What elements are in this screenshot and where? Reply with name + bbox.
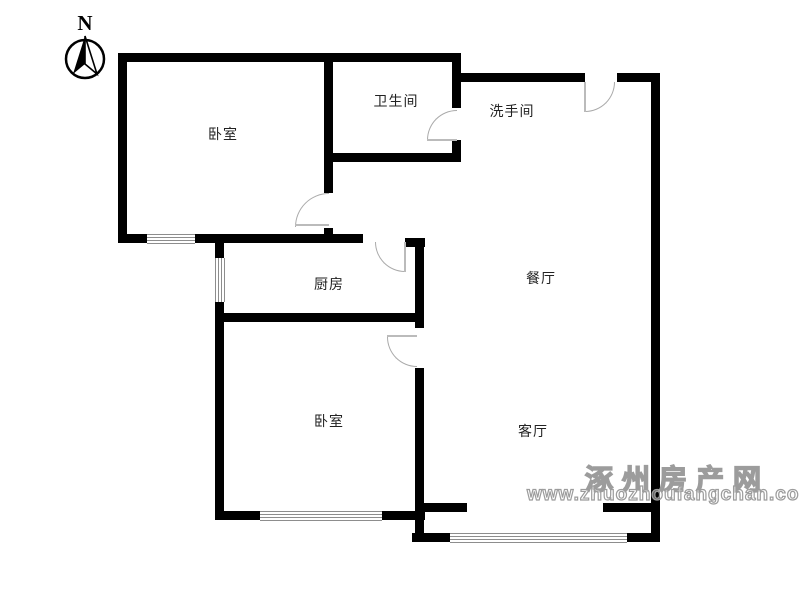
watermark-site-url: www.zhuozhoufangchan.com — [527, 484, 800, 506]
door-arc-bedroom1 — [295, 193, 329, 227]
door-leaf-bedroom2 — [387, 335, 417, 337]
compass-north-label: N — [77, 11, 92, 35]
room-label-dining-room: 餐厅 — [526, 268, 556, 288]
door-leaf-entrance — [584, 82, 586, 112]
room-label-washroom: 洗手间 — [490, 101, 535, 121]
door-arc-bedroom2 — [387, 337, 417, 367]
wall-balcony-right — [651, 503, 660, 542]
wall-bedroom1-left — [118, 53, 127, 243]
north-compass: N — [60, 6, 110, 88]
floor-plan: N 卧室 卫生间 洗手间 厨房 餐 — [0, 0, 800, 600]
window-bedroom1 — [147, 234, 195, 244]
door-leaf-bedroom1 — [295, 224, 329, 226]
room-label-bathroom: 卫生间 — [374, 91, 419, 111]
wall-entry-top-left — [452, 73, 585, 82]
door-arc-bathroom — [427, 110, 457, 140]
wall-top — [118, 53, 461, 62]
wall-bedroom1-bottom-left — [118, 234, 148, 243]
wall-right — [651, 73, 660, 511]
wall-left-upper-stub — [215, 243, 224, 258]
room-label-living-room: 客厅 — [518, 421, 548, 441]
window-bedroom2 — [260, 511, 382, 521]
window-kitchen — [215, 258, 225, 302]
door-leaf-bathroom — [427, 139, 457, 141]
door-arc-entrance — [585, 82, 615, 112]
wall-bedroom1-bottom-right — [195, 234, 363, 243]
wall-center-lower — [415, 368, 424, 520]
room-label-kitchen: 厨房 — [314, 274, 344, 294]
door-arc-kitchen — [375, 242, 405, 272]
wall-bedroom1-divider-stub — [324, 228, 333, 243]
wall-bedroom2-bottom-left — [215, 511, 260, 520]
room-label-bedroom-1: 卧室 — [208, 124, 238, 144]
door-leaf-kitchen — [404, 242, 406, 272]
window-balcony — [450, 533, 627, 543]
wall-balcony-bottom-left — [412, 533, 450, 542]
wall-left-lower — [215, 302, 224, 520]
wall-kitchen-bottom — [215, 313, 424, 322]
room-label-bedroom-2: 卧室 — [314, 411, 344, 431]
wall-bedroom1-bathroom-divider — [324, 53, 333, 193]
wall-bathroom-bottom — [324, 153, 461, 162]
